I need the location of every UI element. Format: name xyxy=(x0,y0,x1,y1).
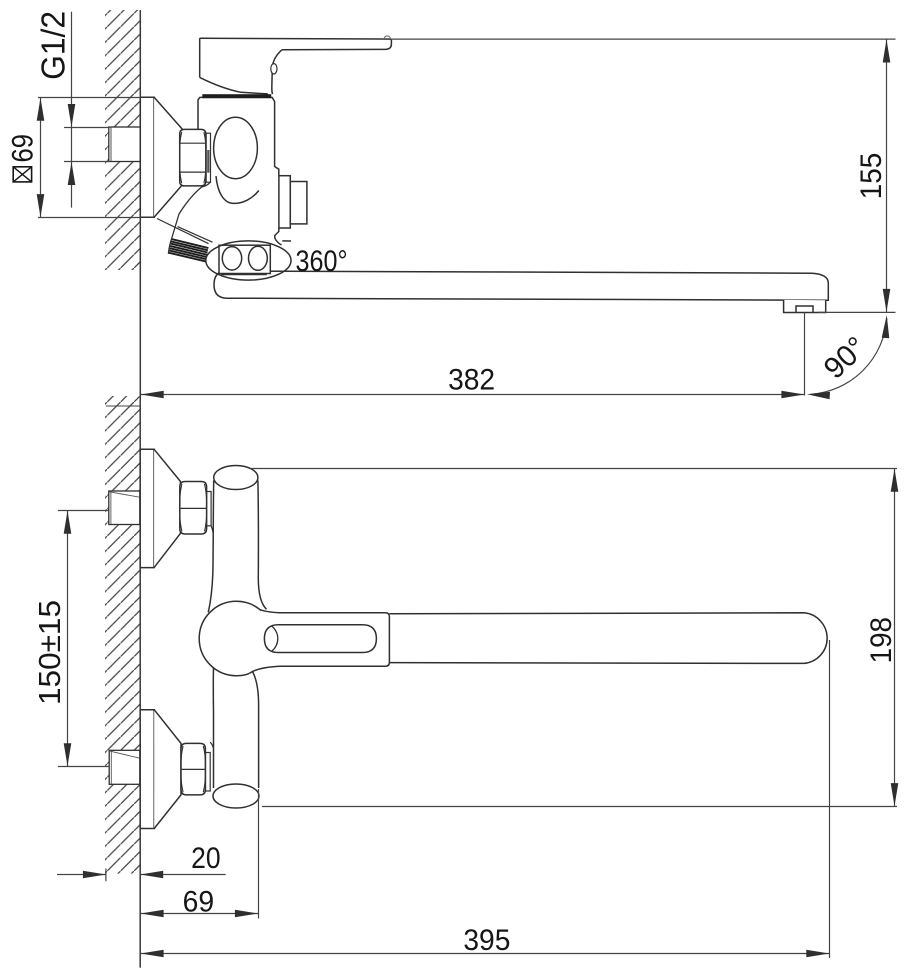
svg-text:155: 155 xyxy=(855,153,888,200)
svg-text:382: 382 xyxy=(448,364,495,397)
svg-text:20: 20 xyxy=(191,842,221,875)
svg-text:69: 69 xyxy=(183,885,215,918)
svg-text:150±15: 150±15 xyxy=(32,600,67,705)
svg-text:198: 198 xyxy=(865,617,898,663)
svg-text:360°: 360° xyxy=(296,245,348,278)
svg-text:G1/2: G1/2 xyxy=(35,11,72,80)
svg-text:395: 395 xyxy=(463,924,510,957)
svg-text:69: 69 xyxy=(7,134,40,163)
